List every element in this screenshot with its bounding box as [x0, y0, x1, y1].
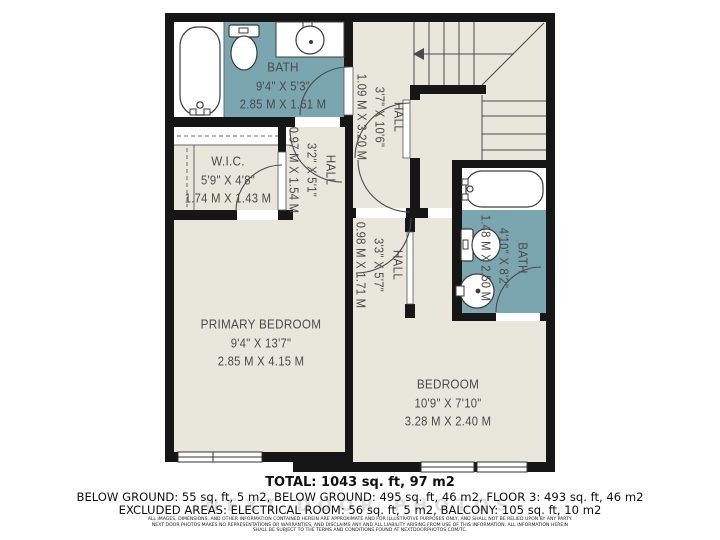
floor-areas-text: BELOW GROUND: 55 sq. ft, 5 m2, BELOW GRO…	[0, 490, 720, 504]
room-label-bath-1: BATH 9'4" X 5'3" 2.85 M X 1.61 M	[240, 58, 327, 115]
room-label-hall-main: HALL 3'7" X 10'6" 1.09 M X 3.20 M	[352, 74, 409, 161]
room-label-hall-small: HALL 3'2" X 5'1" 0.97 M X 1.54 M	[284, 127, 341, 214]
room-label-bath-2: BATH 4'10" X 8'2" 1.48 M X 2.50 M	[476, 215, 533, 302]
total-area-text: TOTAL: 1043 sq. ft, 97 m2	[0, 475, 720, 490]
bathtub-icon	[462, 171, 543, 207]
room-name: HALL	[388, 222, 408, 309]
room-dims-imperial: 10'9" X 7'10"	[405, 394, 492, 413]
room-dims-metric: 2.85 M X 4.15 M	[201, 353, 322, 372]
room-name: HALL	[389, 74, 409, 161]
window	[477, 462, 527, 472]
excluded-areas-text: EXCLUDED AREAS: ELECTRICAL ROOM: 56 sq. …	[0, 503, 720, 517]
room-dims-metric: 1.48 M X 2.50 M	[476, 215, 495, 302]
window	[178, 452, 262, 462]
room-dims-metric: 1.74 M X 1.43 M	[185, 190, 272, 209]
room-dims-imperial: 3'7" X 10'6"	[370, 74, 389, 161]
room-name: PRIMARY BEDROOM	[201, 315, 322, 335]
room-dims-imperial: 3'3" X 5'7"	[369, 222, 388, 309]
room-dims-metric: 2.85 M X 1.61 M	[240, 96, 327, 115]
room-dims-imperial: 3'2" X 5'1"	[302, 127, 321, 214]
room-dims-imperial: 5'9" X 4'8"	[185, 171, 272, 190]
bathtub-icon	[180, 27, 220, 115]
sink-icon	[276, 22, 344, 57]
room-dims-metric: 0.97 M X 1.54 M	[284, 127, 303, 214]
room-name: BATH	[240, 58, 327, 78]
room-label-hall-lower: HALL 3'3" X 5'7" 0.98 M X 1.71 M	[351, 222, 408, 309]
room-dims-metric: 0.98 M X 1.71 M	[351, 222, 370, 309]
room-label-primary-bedroom: PRIMARY BEDROOM 9'4" X 13'7" 2.85 M X 4.…	[201, 315, 322, 372]
room-dims-imperial: 4'10" X 8'2"	[494, 215, 513, 302]
room-dims-imperial: 9'4" X 13'7"	[201, 334, 322, 353]
room-label-wic: W.I.C. 5'9" X 4'8" 1.74 M X 1.43 M	[185, 152, 272, 209]
room-dims-imperial: 9'4" X 5'3"	[240, 77, 327, 96]
legal-disclaimer: ALL IMAGES, DIMENSIONS, AND OTHER INFORM…	[0, 517, 720, 534]
room-name: HALL	[321, 127, 341, 214]
floorplan-page: BATH 9'4" X 5'3" 2.85 M X 1.61 M HALL 3'…	[0, 0, 720, 540]
disclaimer-line: SHALL BE SUBJECT TO THE TERMS AND CONDIT…	[0, 528, 720, 534]
room-name: BEDROOM	[405, 375, 492, 395]
door-leaf	[407, 232, 413, 304]
room-name: BATH	[513, 215, 533, 302]
room-dims-metric: 3.28 M X 2.40 M	[405, 413, 492, 432]
room-label-bedroom: BEDROOM 10'9" X 7'10" 3.28 M X 2.40 M	[405, 375, 492, 432]
window	[421, 462, 474, 472]
room-name: W.I.C.	[185, 152, 272, 172]
room-dims-metric: 1.09 M X 3.20 M	[352, 74, 371, 161]
